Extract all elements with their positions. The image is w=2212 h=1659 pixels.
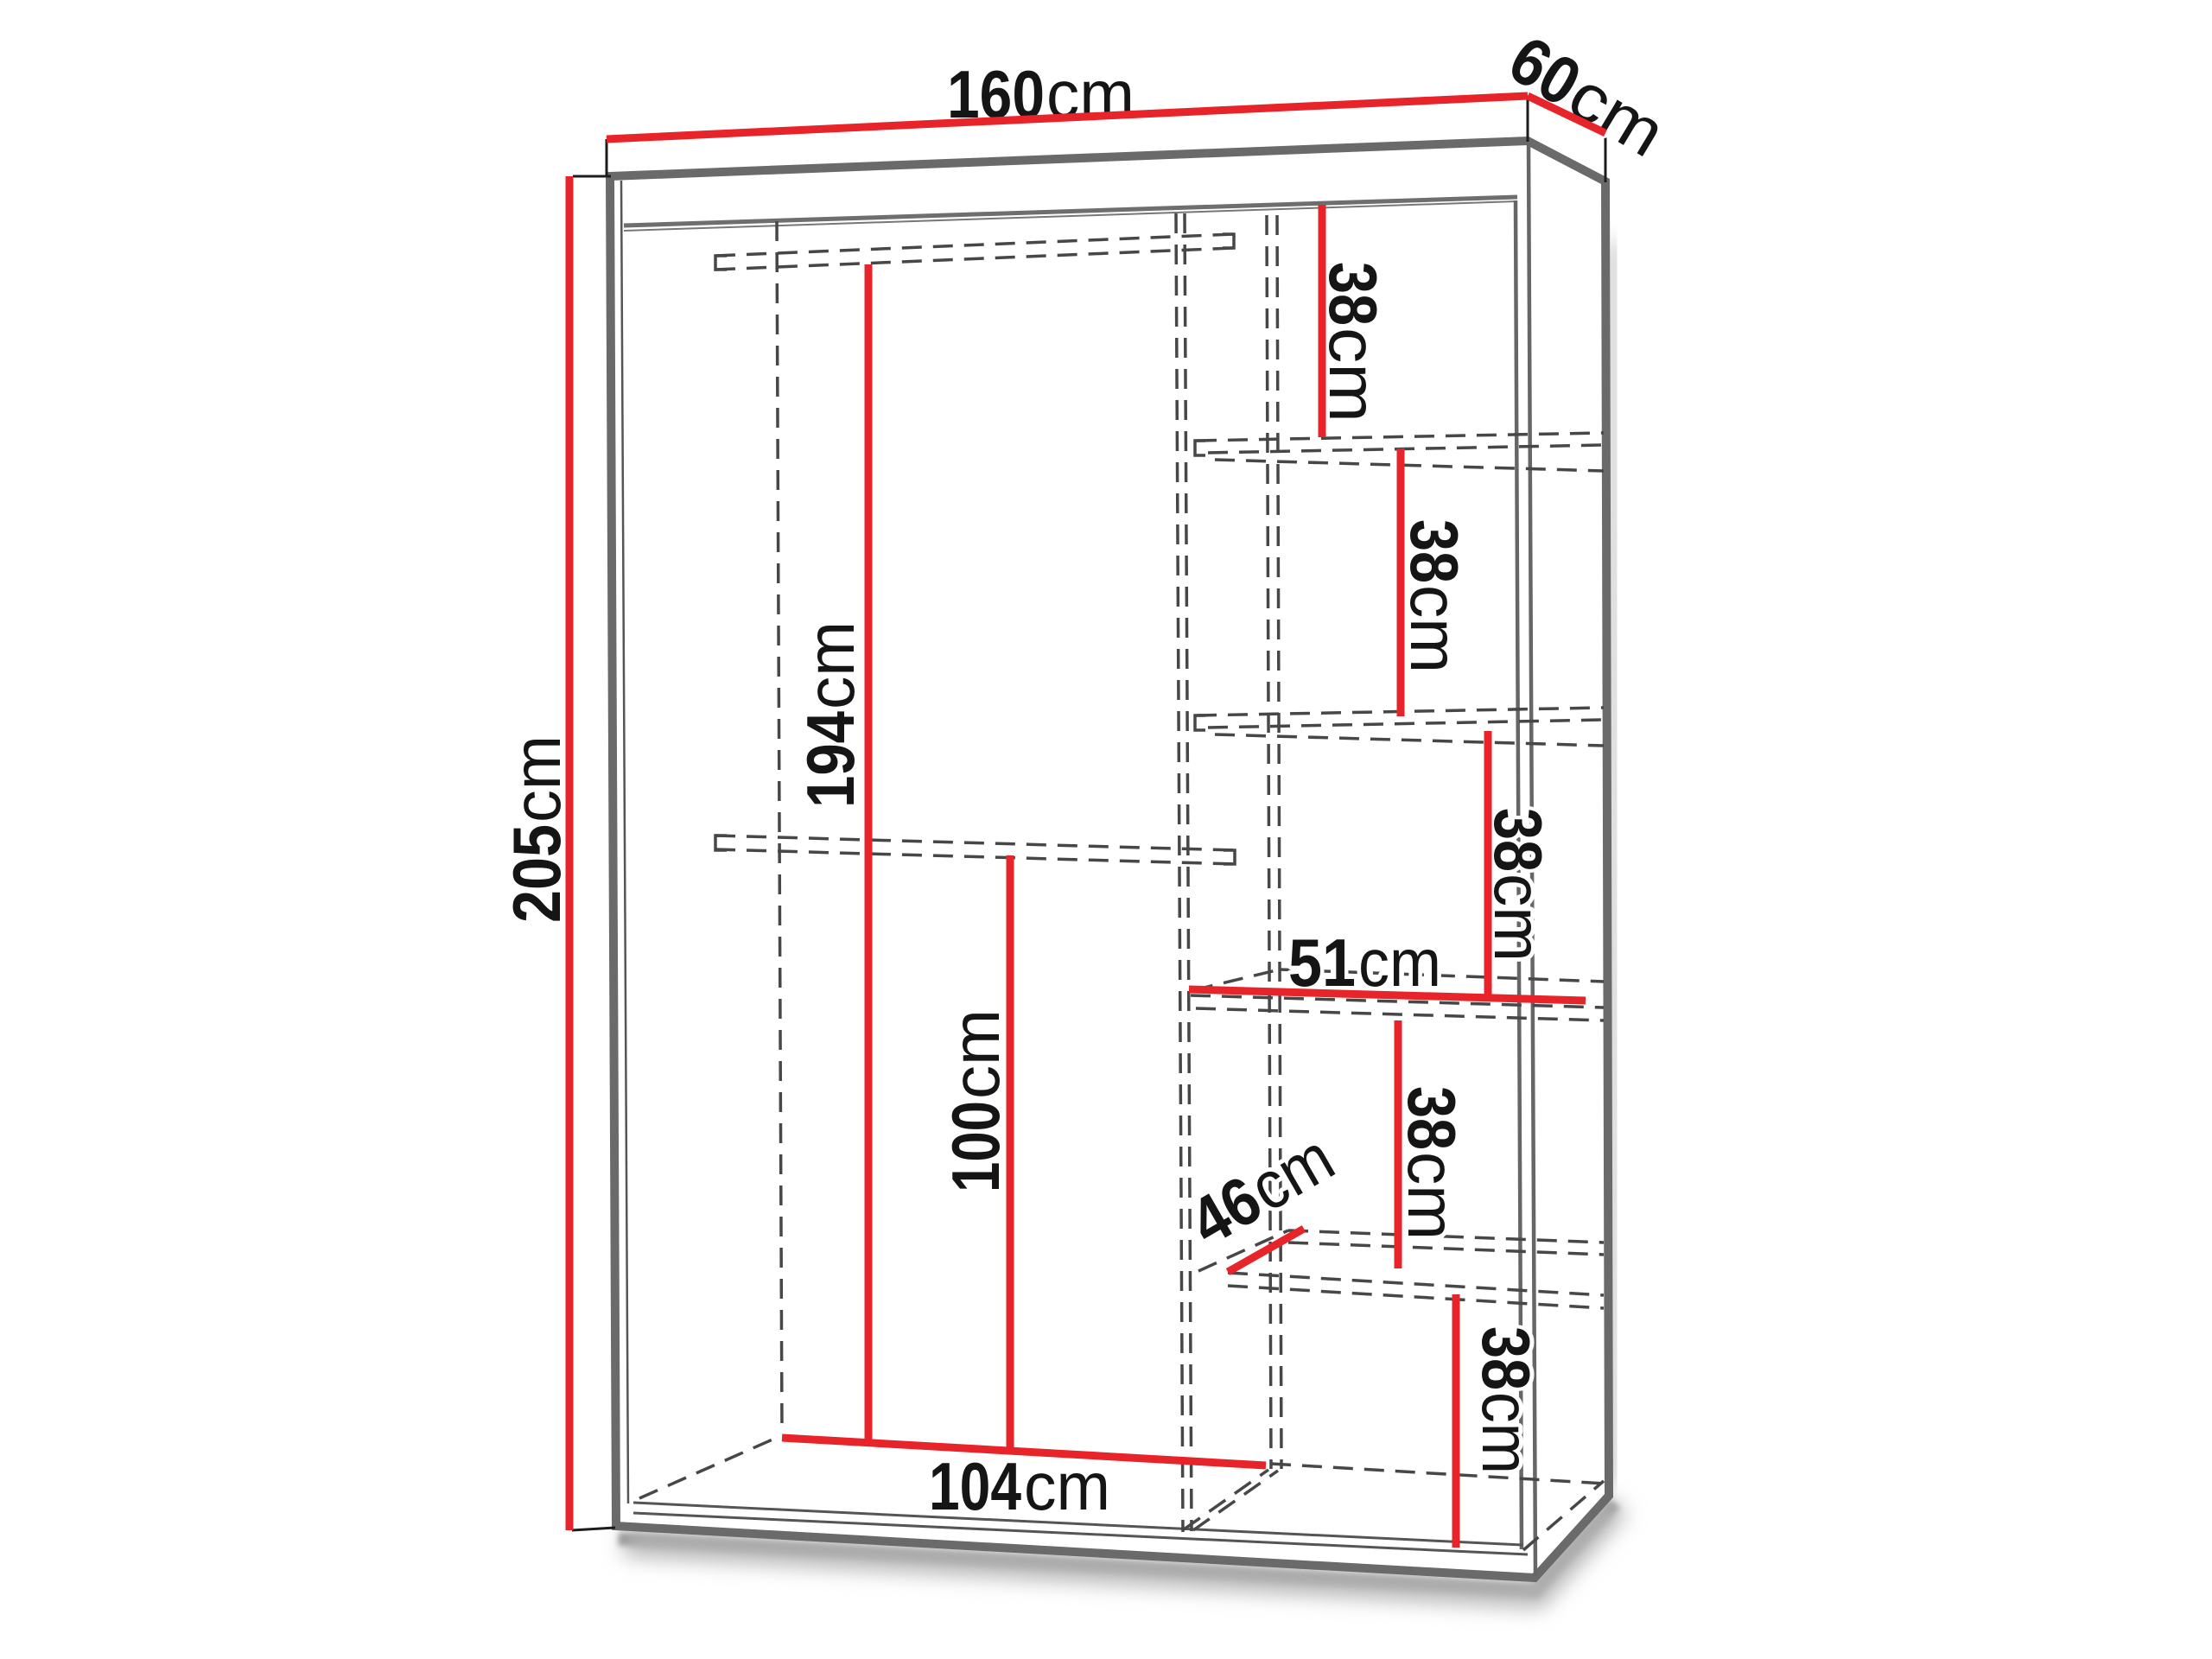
svg-text:194cm: 194cm — [792, 621, 868, 808]
svg-text:38cm: 38cm — [1315, 262, 1391, 423]
svg-text:38cm: 38cm — [1394, 1086, 1470, 1240]
svg-text:38cm: 38cm — [1396, 519, 1472, 673]
svg-text:38cm: 38cm — [1468, 1326, 1544, 1474]
svg-text:205cm: 205cm — [499, 735, 575, 923]
svg-text:104cm: 104cm — [929, 1448, 1110, 1524]
